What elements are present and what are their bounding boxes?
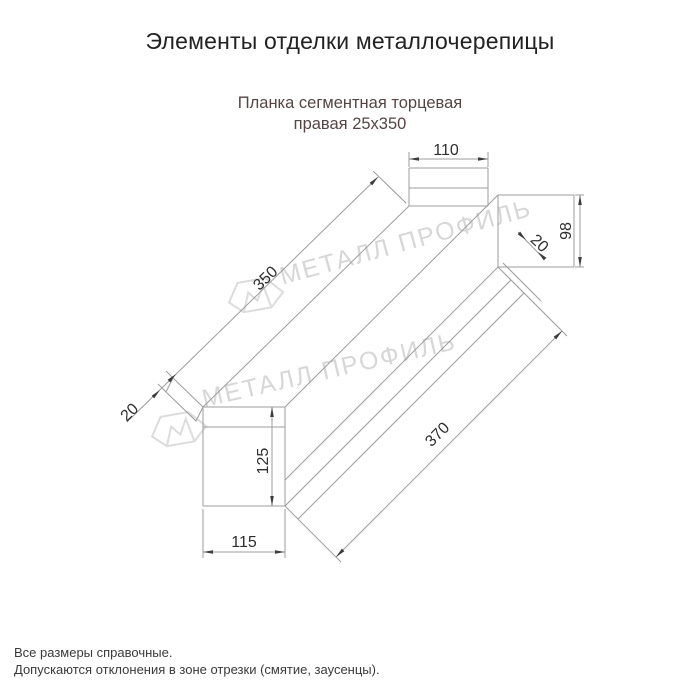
- dim-115: 115: [203, 509, 285, 558]
- dim-side-hem-label: 20: [527, 231, 552, 256]
- dim-top-width-label: 110: [433, 142, 459, 159]
- dim-end-hem-label: 20: [118, 400, 143, 425]
- dim-length-top-label: 350: [250, 263, 281, 294]
- dim-110: 110: [409, 142, 488, 167]
- dim-98: 98: [558, 195, 584, 267]
- dim-20-right: 20: [518, 231, 552, 260]
- dim-side-height-label: 98: [558, 222, 575, 240]
- dim-end-width-label: 115: [231, 534, 257, 551]
- dim-125: 125: [255, 407, 274, 506]
- footer-notes: Все размеры справочные. Допускаются откл…: [14, 644, 380, 678]
- catalog-page: Элементы отделки металлочерепицы Планка …: [0, 0, 700, 700]
- top-end-profile: [409, 168, 488, 206]
- dim-end-height-label: 125: [255, 448, 272, 475]
- dim-20-left: 20: [118, 390, 160, 425]
- brand-watermarks: МЕТАЛЛ ПРОФИЛЬ МЕТАЛЛ ПРОФИЛЬ: [148, 194, 535, 451]
- technical-drawing: МЕТАЛЛ ПРОФИЛЬ МЕТАЛЛ ПРОФИЛЬ: [0, 0, 700, 700]
- dim-length-bottom-label: 370: [422, 419, 453, 450]
- footer-note-line2: Допускаются отклонения в зоне отрезки (с…: [14, 661, 380, 678]
- footer-note-line1: Все размеры справочные.: [14, 644, 380, 661]
